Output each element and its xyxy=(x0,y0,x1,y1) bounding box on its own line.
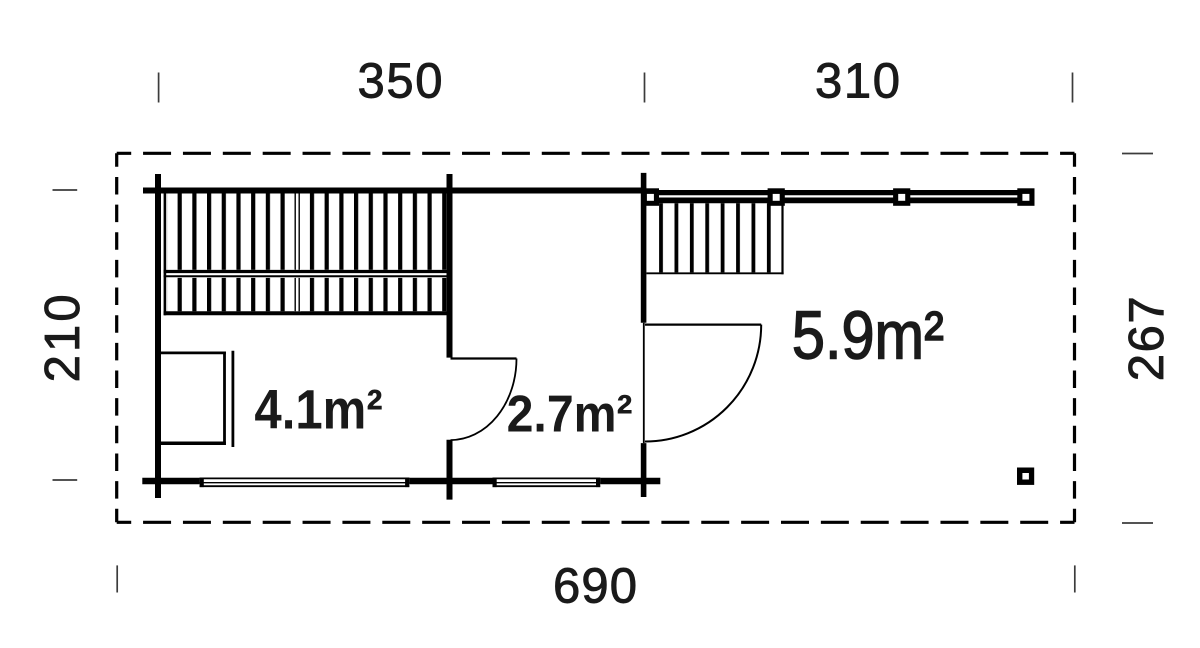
svg-text:210: 210 xyxy=(36,294,90,382)
svg-text:2.7m²: 2.7m² xyxy=(507,386,633,444)
svg-text:5.9m²: 5.9m² xyxy=(792,298,944,373)
svg-text:267: 267 xyxy=(1120,296,1174,381)
svg-text:310: 310 xyxy=(815,55,900,109)
svg-text:4.1m²: 4.1m² xyxy=(254,378,382,440)
svg-text:350: 350 xyxy=(358,55,443,109)
svg-text:690: 690 xyxy=(553,560,637,614)
